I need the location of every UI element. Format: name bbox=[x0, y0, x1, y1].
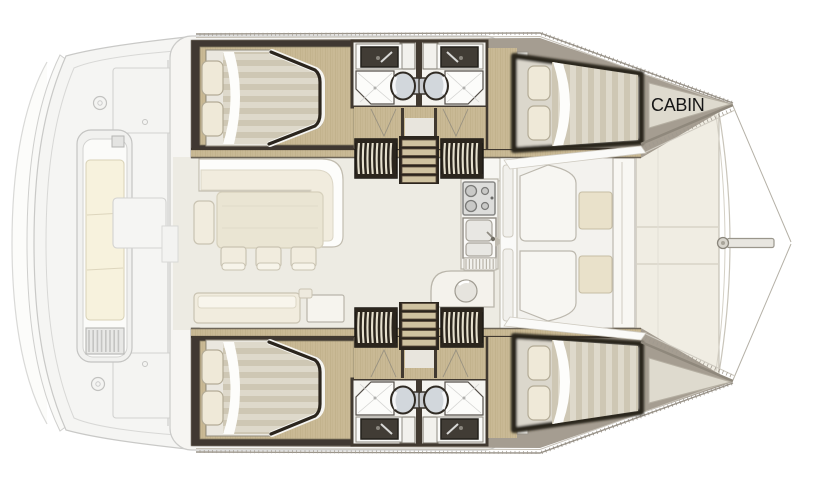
svg-text:CABIN: CABIN bbox=[651, 95, 705, 115]
